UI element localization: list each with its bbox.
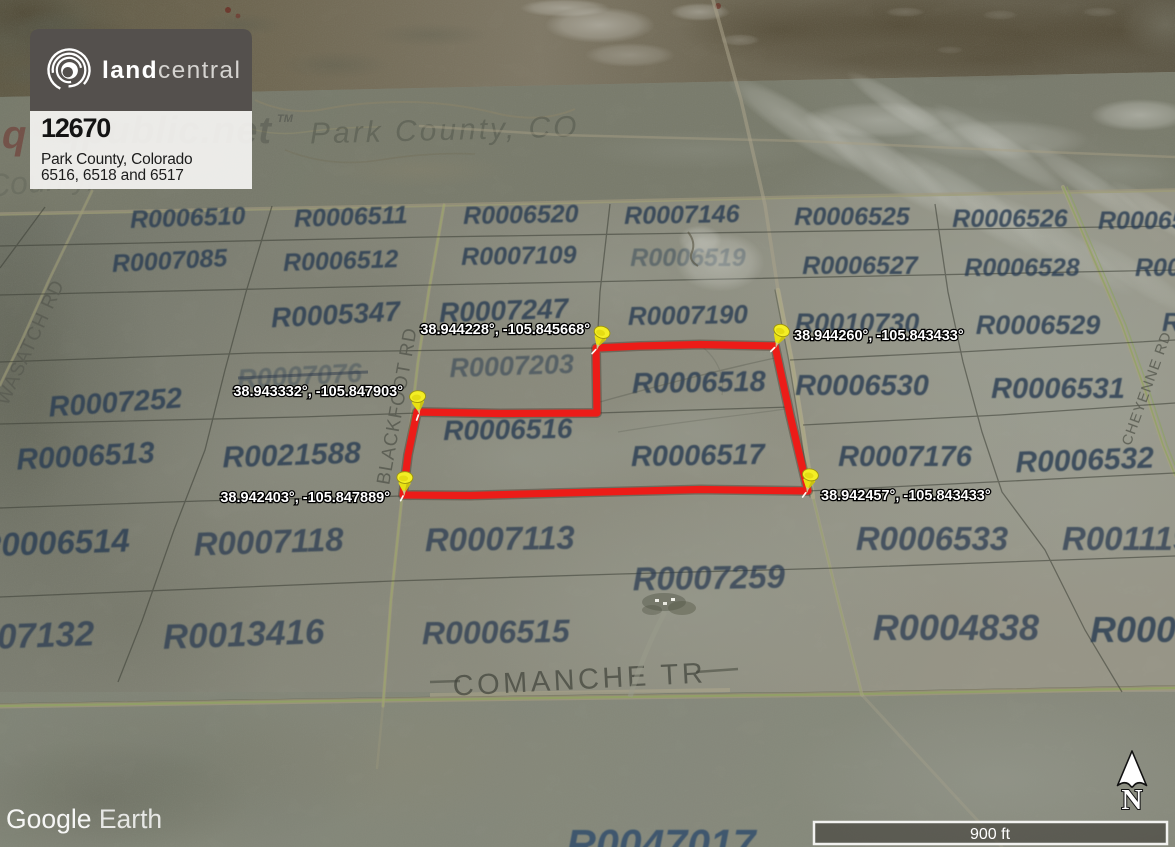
svg-text:R0006512: R0006512 (283, 245, 399, 277)
svg-text:R0006527: R0006527 (802, 252, 918, 280)
svg-text:R0006521: R0006521 (1090, 609, 1175, 650)
svg-text:R0007176: R0007176 (838, 441, 973, 473)
svg-text:R0006517: R0006517 (631, 439, 767, 473)
svg-text:R0012345: R0012345 (1135, 254, 1175, 282)
svg-text:R0007203: R0007203 (449, 349, 575, 383)
svg-text:R0007132: R0007132 (0, 614, 96, 659)
svg-text:R0006524: R0006524 (1098, 207, 1175, 235)
svg-text:38.944228°, -105.845668°: 38.944228°, -105.845668° (420, 322, 590, 338)
svg-text:R0006530: R0006530 (795, 370, 929, 402)
svg-text:R0006525: R0006525 (794, 203, 910, 231)
svg-text:R0013416: R0013416 (162, 612, 325, 657)
svg-text:R0006510: R0006510 (130, 202, 246, 234)
svg-text:R0011197: R0011197 (1062, 520, 1175, 557)
svg-text:R0006518: R0006518 (632, 366, 767, 400)
svg-text:R0006529: R0006529 (976, 310, 1101, 340)
svg-text:6516, 6518 and 6517: 6516, 6518 and 6517 (41, 167, 184, 184)
svg-text:R0007146: R0007146 (624, 200, 741, 230)
svg-text:R0007259: R0007259 (632, 558, 786, 598)
svg-text:R0047017: R0047017 (566, 821, 757, 847)
svg-text:R0006533: R0006533 (856, 520, 1008, 557)
svg-text:R0007113: R0007113 (425, 519, 575, 559)
svg-text:R0021588: R0021588 (222, 437, 362, 475)
svg-text:900 ft: 900 ft (970, 826, 1011, 843)
svg-text:38.942457°, -105.843433°: 38.942457°, -105.843433° (821, 488, 991, 504)
svg-text:R0007118: R0007118 (193, 520, 345, 562)
svg-text:q: q (2, 113, 26, 157)
svg-text:R0006514: R0006514 (0, 521, 130, 563)
svg-text:R0004838: R0004838 (873, 607, 1039, 648)
svg-text:R0007190: R0007190 (628, 299, 749, 331)
svg-text:Park County, CO: Park County, CO (310, 110, 580, 150)
svg-text:R0007109: R0007109 (461, 241, 577, 271)
svg-text:Google Earth: Google Earth (6, 804, 162, 834)
svg-text:N: N (1122, 784, 1143, 816)
svg-text:38.942403°, -105.847889°: 38.942403°, -105.847889° (220, 490, 390, 506)
svg-text:R0006528: R0006528 (964, 254, 1079, 282)
svg-text:R0006531: R0006531 (991, 373, 1125, 405)
svg-text:Park County, Colorado: Park County, Colorado (41, 151, 192, 168)
svg-text:R0006515: R0006515 (422, 613, 571, 652)
svg-text:12670: 12670 (41, 113, 110, 143)
svg-text:landcentral: landcentral (102, 57, 241, 84)
svg-text:38.944260°, -105.843433°: 38.944260°, -105.843433° (794, 328, 964, 344)
svg-text:R0006511: R0006511 (294, 201, 408, 233)
svg-text:R0006520: R0006520 (463, 200, 579, 230)
svg-text:R0006526: R0006526 (952, 205, 1068, 233)
svg-text:TM: TM (277, 113, 294, 125)
svg-text:38.943332°, -105.847903°: 38.943332°, -105.847903° (233, 384, 403, 400)
